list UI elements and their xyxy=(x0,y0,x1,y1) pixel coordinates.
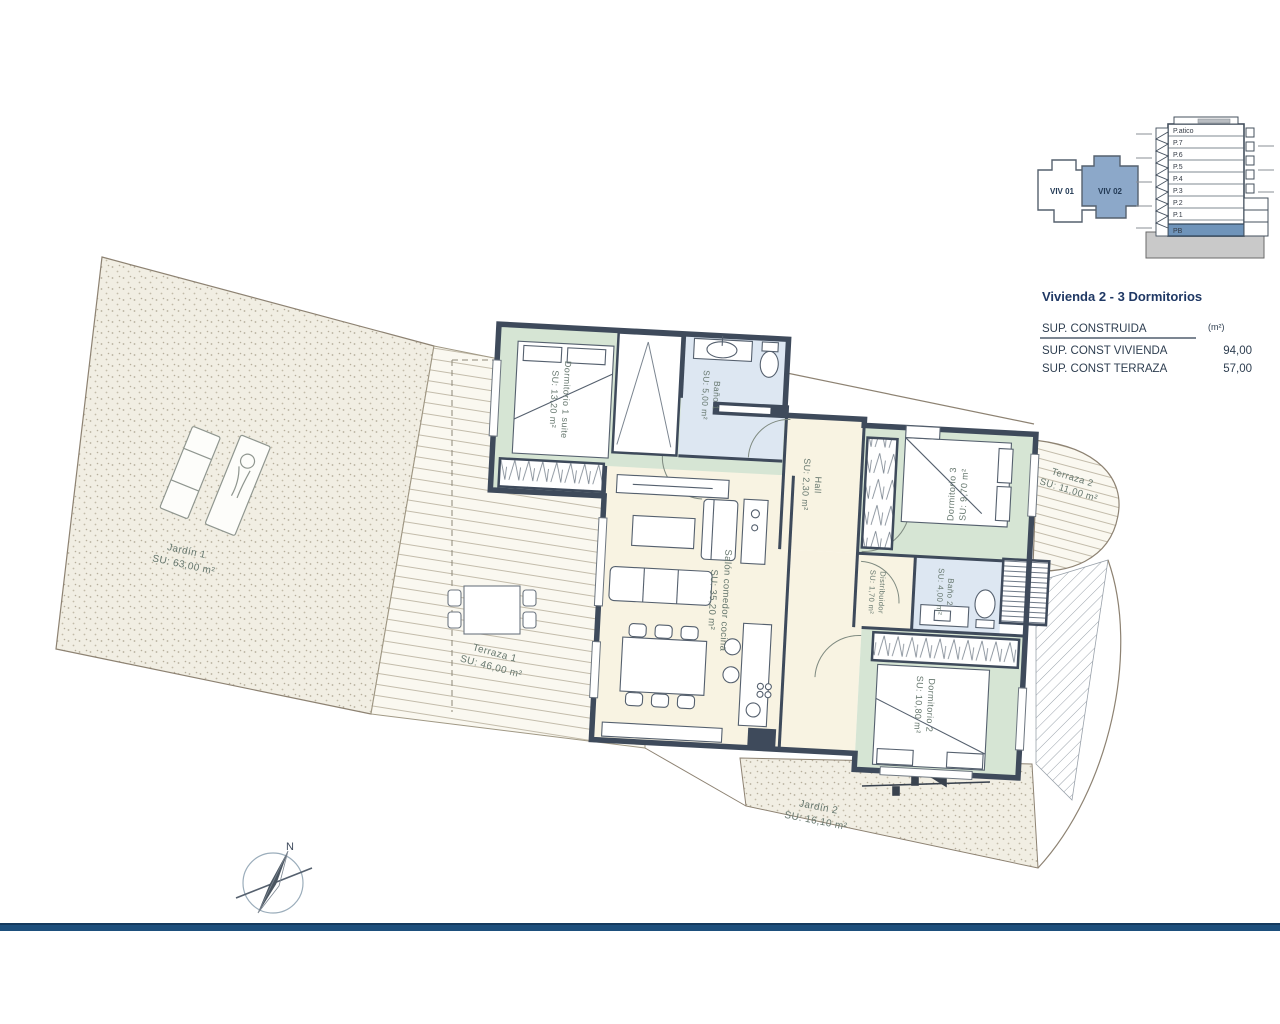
key-plan-viv02-label: VIV 02 xyxy=(1098,187,1123,196)
unit-title: Vivienda 2 - 3 Dormitorios xyxy=(1042,289,1202,304)
building-elevation: P.atico P.7 P.6 P.5 P.4 P.3 P.2 P.1 PB xyxy=(1136,117,1274,258)
floor-label-atico: P.atico xyxy=(1173,128,1194,135)
plot-boundary-bottom xyxy=(645,748,746,806)
table-row2-label: SUP. CONST TERRAZA xyxy=(1042,363,1168,375)
table-header-unit: (m²) xyxy=(1208,322,1225,332)
floor-label-p1: P.1 xyxy=(1173,212,1183,219)
key-plan-viv01-label: VIV 01 xyxy=(1050,187,1075,196)
floor-label-p2: P.2 xyxy=(1173,200,1183,207)
table-row2-value: 57,00 xyxy=(1223,363,1252,375)
terraza2-area xyxy=(1031,440,1122,574)
floor-label-p3: P.3 xyxy=(1173,188,1183,195)
room-label-bano1: Baño 1 xyxy=(711,381,723,411)
floor-label-p6: P.6 xyxy=(1173,152,1183,159)
table-row1-label: SUP. CONST VIVIENDA xyxy=(1042,345,1168,357)
plan-drawing: Dormitorio 1 suite SU: 13,20 m² Baño 1 S… xyxy=(0,0,1280,1024)
floor-label-p7: P.7 xyxy=(1173,140,1183,147)
table-row1-value: 94,00 xyxy=(1223,345,1252,357)
compass-n-label: N xyxy=(286,841,294,853)
floor-label-p5: P.5 xyxy=(1173,164,1183,171)
elevation-stair-zigzag xyxy=(1156,128,1168,236)
floor-label-p4: P.4 xyxy=(1173,176,1183,183)
info-panel: VIV 01 VIV 02 xyxy=(1038,117,1274,375)
kitchen-appliance xyxy=(747,728,776,749)
wardrobe-dorm2 xyxy=(872,632,1019,668)
room-label-hall: Hall xyxy=(813,476,824,494)
wardrobe-hall xyxy=(862,438,898,549)
elevation-balconies xyxy=(1244,128,1268,236)
floor-label-pb: PB xyxy=(1173,228,1183,235)
key-plan: VIV 01 VIV 02 xyxy=(1038,156,1138,222)
wardrobe-dorm1 xyxy=(499,458,604,491)
room-label-bano2: Baño 2 xyxy=(945,578,955,606)
table-header: SUP. CONSTRUIDA xyxy=(1042,323,1147,335)
north-compass: N xyxy=(236,841,312,913)
footer-bar xyxy=(0,923,1280,931)
surface-table: SUP. CONSTRUIDA (m²) SUP. CONST VIVIENDA… xyxy=(1040,322,1252,375)
floor-plan-sheet: Dormitorio 1 suite SU: 13,20 m² Baño 1 S… xyxy=(0,0,1280,1024)
wardrobe-suite xyxy=(612,332,682,455)
kitchen-corridor xyxy=(779,550,865,754)
